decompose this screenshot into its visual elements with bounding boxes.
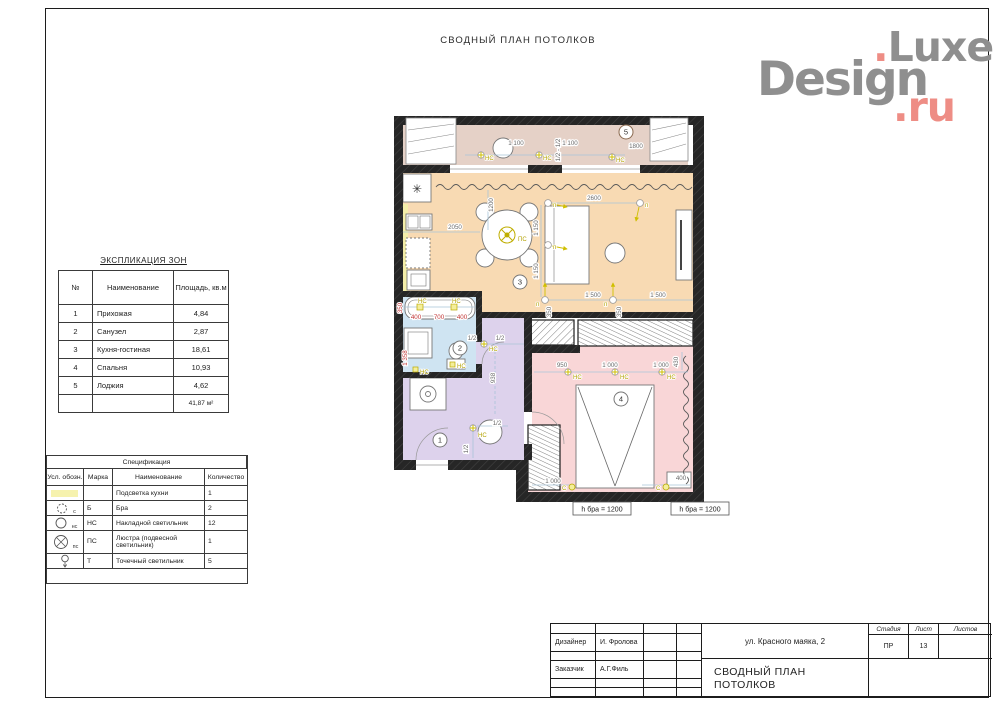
mark-label: п [553, 245, 556, 251]
expl-total-empty [59, 395, 93, 413]
dim-label: 1/2 [468, 335, 477, 342]
spec-cell: Подсветка кухни [113, 486, 205, 501]
tb-cell [596, 679, 644, 688]
tb-cell [596, 688, 644, 698]
sconce-icon: с [47, 501, 84, 516]
expl-cell: 3 [59, 341, 93, 359]
page-title: СВОДНЫЙ ПЛАН ПОТОЛКОВ [398, 35, 638, 46]
sheet-value: 13 [909, 635, 939, 659]
tb-cell [644, 652, 677, 661]
spec-header-mark: Марка [84, 469, 113, 486]
drawing-title: СВОДНЫЙ ПЛАН ПОТОЛКОВ [702, 659, 869, 698]
dim-label-red: 350 [397, 302, 404, 313]
spec-cell: Бра [113, 501, 205, 516]
tb-cell [869, 659, 992, 698]
mark-label: п [536, 302, 539, 308]
dim-label: 1 000 [545, 478, 561, 485]
dim-label: 1 500 [650, 292, 666, 299]
tb-cell [677, 688, 702, 698]
tb-cell [644, 688, 677, 698]
stage-value: ПР [869, 635, 909, 659]
tb-cell [644, 624, 677, 634]
mark-label: п [604, 302, 607, 308]
designer-label: Дизайнер [551, 634, 596, 652]
mark-label: НС [457, 364, 466, 370]
explication-table: ЭКСПЛИКАЦИЯ ЗОН № Наименование Площадь, … [58, 256, 229, 413]
spec-cell [84, 486, 113, 501]
dim-label: 1/2 - 1/2 [555, 138, 562, 161]
expl-cell: Санузел [93, 323, 174, 341]
expl-cell: Прихожая [93, 305, 174, 323]
expl-cell: 10,93 [174, 359, 229, 377]
mark-label: НС [489, 347, 498, 353]
spec-cell: 1 [205, 486, 247, 501]
expl-cell: Кухня-гостиная [93, 341, 174, 359]
title-block: Дизайнер И. Фролова Заказчик А.Г.Филь ул… [550, 623, 991, 697]
dim-label: 2600 [587, 195, 601, 202]
spec-cell: Люстра (подвесной светильник) [113, 531, 205, 554]
stage-label: Стадия [869, 624, 909, 635]
zone-number: 3 [518, 278, 522, 287]
spec-header-qty: Количество [205, 469, 247, 486]
tv-unit [676, 210, 692, 280]
spec-cell: 12 [205, 516, 247, 531]
expl-header-area: Площадь, кв.м [174, 271, 229, 305]
expl-cell: 4,62 [174, 377, 229, 395]
mark-label: НС [420, 370, 429, 376]
spec-empty-area [47, 569, 247, 583]
expl-cell: 4 [59, 359, 93, 377]
expl-cell: 18,61 [174, 341, 229, 359]
zone-number: 2 [458, 344, 462, 353]
tb-cell [677, 634, 702, 652]
tb-cell [644, 679, 677, 688]
spec-cell: 2 [205, 501, 247, 516]
dim-label-red: 1 358 [402, 350, 409, 366]
tb-cell [551, 679, 596, 688]
mark-label: С [562, 486, 567, 492]
tb-cell [644, 661, 677, 679]
mark-label: НС [620, 375, 629, 381]
window [650, 118, 688, 161]
chandelier-icon: пс [47, 531, 84, 554]
sheets-value [939, 635, 992, 659]
tb-cell [677, 624, 702, 634]
spec-header-name: Наименование [113, 469, 205, 486]
dim-label: 1 150 [533, 263, 540, 279]
sheets-label: Листов [939, 624, 992, 635]
expl-cell: 1 [59, 305, 93, 323]
dim-label-red: 400 [411, 314, 422, 321]
dim-label: 938 [490, 372, 497, 383]
spec-cell: ПС [84, 531, 113, 554]
dim-label: 350 [616, 306, 623, 317]
spec-cell: НС [84, 516, 113, 531]
dim-label: 1 500 [585, 292, 601, 299]
logo-ru: .ru [893, 83, 955, 131]
mark-label: С [656, 486, 661, 492]
mark-label: НС [452, 299, 461, 305]
spec-cell: Накладной светильник [113, 516, 205, 531]
expl-header-num: № [59, 271, 93, 305]
mark-label: НС [543, 156, 552, 162]
mark-label: п [645, 203, 648, 209]
zone-number: 5 [624, 128, 628, 137]
specification-table: Спецификация Усл. обозн. Марка Наименова… [46, 455, 248, 584]
dim-label: 950 [557, 362, 568, 369]
tb-cell [596, 624, 644, 634]
expl-cell: 2 [59, 323, 93, 341]
spec-title: Спецификация [47, 456, 247, 469]
expl-cell: Спальня [93, 359, 174, 377]
surface-light-icon: нс [47, 516, 84, 531]
tb-cell [677, 679, 702, 688]
mark-label: ПС [518, 237, 527, 243]
expl-total-value: 41,87 м² [174, 395, 229, 413]
dim-label: 1 000 [602, 362, 618, 369]
tb-cell [551, 624, 596, 634]
ceiling-plan-drawing: ✳ 1 100 1 100 1800 1/2 - 1/2 2600 1200 2… [390, 108, 740, 520]
note-label: h бра = 1200 [581, 506, 622, 514]
snowflake-icon: ✳ [412, 182, 422, 196]
spec-cell: 1 [205, 531, 247, 554]
mark-label: НС [418, 299, 427, 305]
tb-cell [644, 634, 677, 652]
dim-label-red: 700 [434, 314, 445, 321]
dim-label: 1/2 [493, 420, 502, 427]
coffee-table [605, 243, 625, 263]
dim-label: 1800 [629, 143, 643, 150]
notes: h бра = 1200 h бра = 1200 [573, 502, 729, 515]
dim-label: 2050 [448, 224, 462, 231]
kitchen-backlight-icon [47, 486, 84, 501]
expl-cell: 5 [59, 377, 93, 395]
dim-label: 1200 [488, 198, 495, 212]
tb-cell [677, 661, 702, 679]
tb-cell [551, 652, 596, 661]
dim-label: 1 000 [653, 362, 669, 369]
mark-label: НС [485, 156, 494, 162]
expl-header-name: Наименование [93, 271, 174, 305]
mark-label: НС [478, 433, 487, 439]
spec-cell: Т [84, 554, 113, 569]
spot-light-icon [47, 554, 84, 569]
luxedesign-logo: .Luxe Design .ru [755, 23, 993, 131]
mark-label: НС [616, 158, 625, 164]
dim-label: 1 100 [562, 140, 578, 147]
spec-cell: Точечный светильник [113, 554, 205, 569]
dim-label: 430 [673, 356, 680, 367]
dim-label: 1 100 [508, 140, 524, 147]
note-label: h бра = 1200 [679, 506, 720, 514]
spec-header-symbol: Усл. обозн. [47, 469, 84, 486]
dim-label: 1/2 [496, 335, 505, 342]
dim-label-red: 400 [457, 314, 468, 321]
expl-cell: 2,87 [174, 323, 229, 341]
expl-cell: 4,84 [174, 305, 229, 323]
explication-title: ЭКСПЛИКАЦИЯ ЗОН [58, 256, 229, 265]
cabinet-dashed [406, 238, 430, 268]
mark-label: НС [667, 375, 676, 381]
dim-label: 400 [676, 475, 687, 482]
sheet-label: Лист [909, 624, 939, 635]
tb-cell [677, 652, 702, 661]
client-name: А.Г.Филь [596, 661, 644, 679]
spec-cell: Б [84, 501, 113, 516]
expl-cell: Лоджия [93, 377, 174, 395]
zone-number: 1 [438, 436, 442, 445]
designer-name: И. Фролова [596, 634, 644, 652]
zone-number: 4 [619, 395, 623, 404]
dim-label: 1 150 [533, 220, 540, 236]
mark-label: НС [573, 375, 582, 381]
client-label: Заказчик [551, 661, 596, 679]
project-address: ул. Красного маяка, 2 [702, 624, 869, 659]
spec-cell: 5 [205, 554, 247, 569]
mark-label: п [553, 203, 556, 209]
tb-cell [596, 652, 644, 661]
dim-label: 1/2 [463, 444, 470, 453]
dim-label: 350 [546, 306, 553, 317]
tb-cell [551, 688, 596, 698]
expl-total-empty [93, 395, 174, 413]
